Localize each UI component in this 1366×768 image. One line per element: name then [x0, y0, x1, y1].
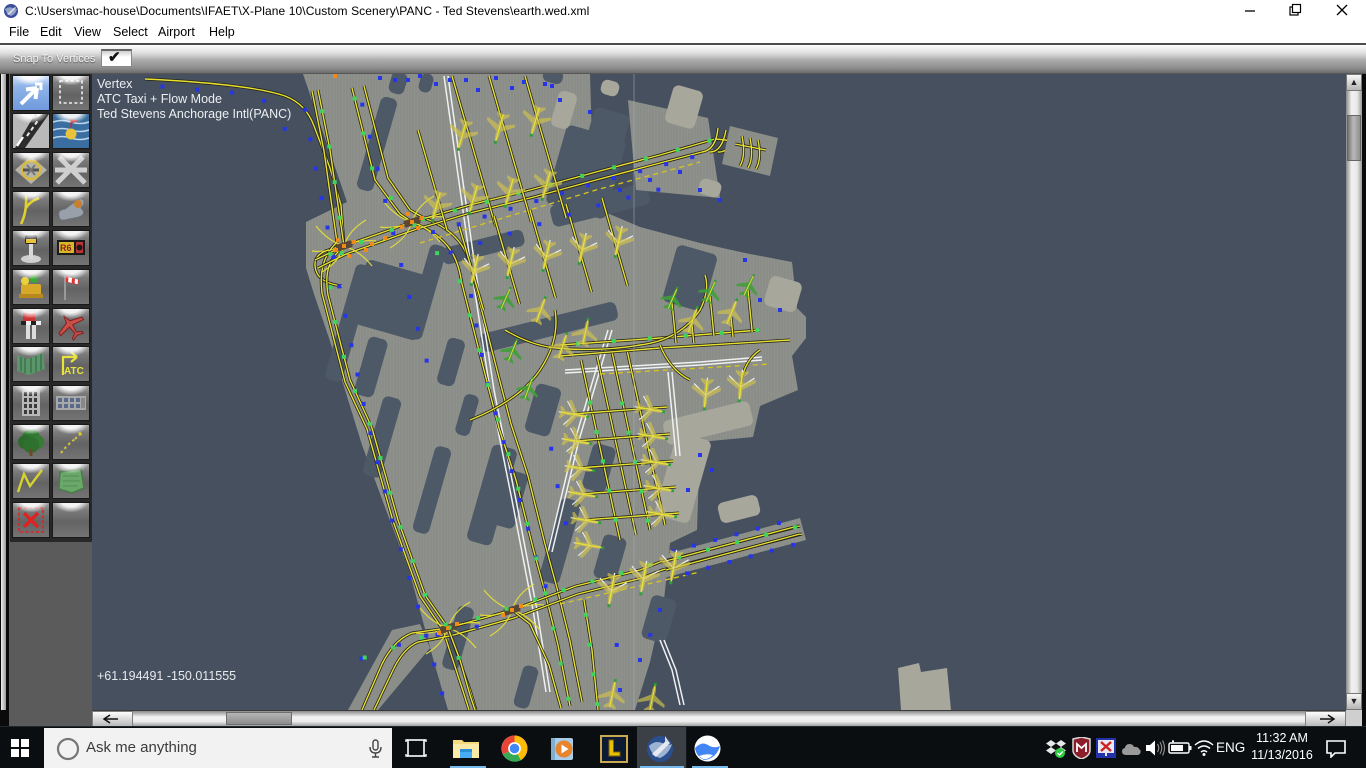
svg-text:R6: R6 [60, 243, 72, 253]
svg-text:ATC: ATC [64, 366, 84, 377]
